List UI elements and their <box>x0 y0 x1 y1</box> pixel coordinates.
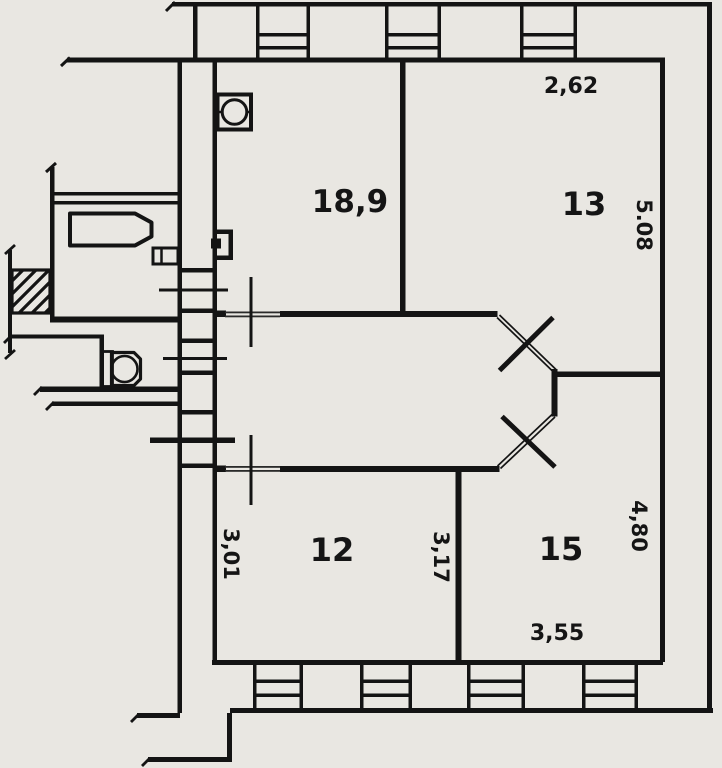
window-icon <box>520 6 577 58</box>
window-icon <box>253 665 303 708</box>
dim-12-length-label: 3,01 <box>219 528 243 580</box>
window-icon <box>582 665 638 708</box>
outer-walls <box>61 2 713 713</box>
window-icon <box>360 665 412 708</box>
vent-icon <box>218 95 252 130</box>
dimension-labels: 2,62 5.08 3,01 3,17 4,80 3,55 <box>219 74 656 646</box>
floor-plan-page: 18,9 13 12 15 2,62 5.08 3,01 3,17 4,80 3… <box>0 0 722 768</box>
hatched-wall-section <box>12 270 50 313</box>
window-icon <box>385 6 441 58</box>
dim-15-length-label: 4,80 <box>627 500 651 552</box>
left-wall-band <box>150 58 235 714</box>
window-symbols-top <box>256 6 577 58</box>
toilet-icon <box>103 352 141 387</box>
room-13-area-label: 13 <box>562 185 607 223</box>
window-icon <box>467 665 525 708</box>
door-swing-lower <box>498 415 556 469</box>
room-18-9-area-label: 18,9 <box>312 184 389 220</box>
dim-12-15-wall-label: 3,17 <box>429 531 453 583</box>
window-icon <box>256 6 310 58</box>
door-swing-upper <box>497 315 556 372</box>
bottom-left-walls <box>131 713 232 766</box>
bathtub-icon <box>70 214 152 246</box>
dim-13-width-label: 2,62 <box>544 74 598 99</box>
dim-13-length-label: 5.08 <box>632 199 656 251</box>
room-12-area-label: 12 <box>310 531 355 569</box>
window-symbols-bottom <box>253 665 638 708</box>
floor-plan-canvas: 18,9 13 12 15 2,62 5.08 3,01 3,17 4,80 3… <box>0 0 722 768</box>
toilet-room-walls <box>4 335 178 411</box>
dim-15-width-label: 3,55 <box>530 621 584 646</box>
room-15-area-label: 15 <box>539 530 584 568</box>
wall-shelf-icon <box>153 248 178 264</box>
bathroom-walls <box>46 163 180 323</box>
